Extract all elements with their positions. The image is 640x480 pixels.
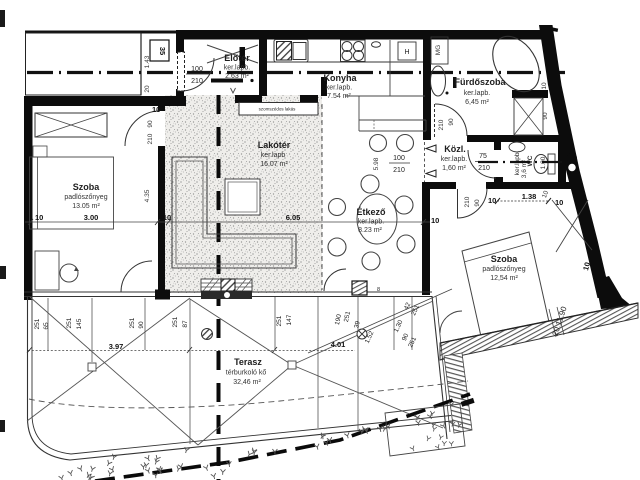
svg-text:32,46 m²: 32,46 m² (233, 379, 261, 386)
svg-text:6.05: 6.05 (286, 213, 301, 222)
svg-text:87: 87 (182, 320, 189, 328)
svg-text:ker.lapb.: ker.lapb. (464, 90, 491, 97)
svg-text:1.43: 1.43 (144, 55, 151, 68)
svg-text:210: 210 (147, 133, 154, 144)
svg-text:Étkező: Étkező (356, 207, 386, 217)
svg-text:Fürdőszoba: Fürdőszoba (455, 77, 507, 87)
svg-text:6,45 m²: 6,45 m² (465, 99, 489, 106)
svg-text:1.38: 1.38 (522, 192, 537, 201)
svg-text:10: 10 (35, 213, 43, 222)
svg-text:65: 65 (43, 322, 50, 330)
svg-text:7.54 m²: 7.54 m² (327, 93, 351, 100)
svg-text:Konyha: Konyha (323, 73, 357, 83)
svg-text:1,60 m²: 1,60 m² (442, 165, 466, 172)
svg-text:3.97: 3.97 (109, 342, 124, 351)
svg-text:5.98: 5.98 (373, 157, 380, 170)
svg-text:10: 10 (541, 82, 548, 90)
svg-text:12,54 m²: 12,54 m² (490, 275, 518, 282)
svg-text:ker.lapb.: ker.lapb. (326, 85, 353, 92)
svg-text:Előtér: Előtér (224, 53, 250, 63)
svg-text:210: 210 (478, 165, 490, 172)
svg-text:90: 90 (542, 112, 549, 120)
svg-text:210: 210 (393, 167, 405, 174)
svg-text:WC: WC (527, 155, 534, 166)
svg-text:145: 145 (76, 318, 83, 329)
svg-text:3.00: 3.00 (84, 213, 99, 222)
svg-text:10: 10 (152, 105, 160, 114)
svg-text:16.07 m²: 16.07 m² (260, 161, 288, 168)
svg-text:90: 90 (147, 120, 154, 128)
svg-text:75: 75 (479, 153, 487, 160)
svg-text:H: H (404, 49, 409, 56)
svg-text:10: 10 (431, 216, 439, 225)
svg-text:35: 35 (158, 47, 167, 55)
svg-text:Szoba: Szoba (73, 182, 100, 192)
svg-text:8.23 m²: 8.23 m² (358, 227, 382, 234)
svg-text:ker.lapb.: ker.lapb. (441, 156, 468, 163)
svg-text:210: 210 (438, 119, 445, 130)
svg-text:8: 8 (377, 287, 380, 293)
svg-text:Szoba: Szoba (491, 254, 518, 264)
svg-text:térburkoló kő: térburkoló kő (226, 370, 267, 377)
svg-text:20: 20 (144, 85, 151, 93)
svg-text:szomszédos lakás: szomszédos lakás (259, 107, 297, 112)
svg-text:padlószőnyeg: padlószőnyeg (482, 266, 525, 273)
svg-text:90: 90 (138, 321, 145, 329)
svg-text:251: 251 (172, 316, 179, 327)
svg-text:251: 251 (34, 318, 41, 329)
svg-text:147: 147 (286, 314, 293, 325)
svg-text:251: 251 (66, 317, 73, 328)
svg-text:MG: MG (435, 45, 442, 55)
svg-text:padlószőnyeg: padlószőnyeg (64, 194, 107, 201)
svg-text:210: 210 (464, 196, 471, 207)
svg-text:210: 210 (191, 78, 203, 85)
svg-text:ker.lapb: ker.lapb (261, 152, 286, 159)
svg-text:10: 10 (163, 213, 171, 222)
svg-text:90: 90 (448, 118, 455, 126)
svg-text:4.01: 4.01 (331, 340, 346, 349)
svg-text:Terasz: Terasz (234, 357, 262, 367)
svg-text:Lakótér: Lakótér (258, 140, 291, 150)
svg-text:Közl.: Közl. (444, 144, 466, 154)
svg-text:90: 90 (474, 199, 481, 207)
svg-text:100: 100 (191, 66, 203, 73)
svg-text:251: 251 (276, 315, 283, 326)
svg-text:13.05 m²: 13.05 m² (72, 203, 100, 210)
svg-text:100: 100 (393, 155, 405, 162)
svg-text:ker.lapb.: ker.lapb. (224, 65, 251, 72)
svg-text:4.35: 4.35 (144, 189, 151, 202)
svg-text:251: 251 (129, 317, 136, 328)
